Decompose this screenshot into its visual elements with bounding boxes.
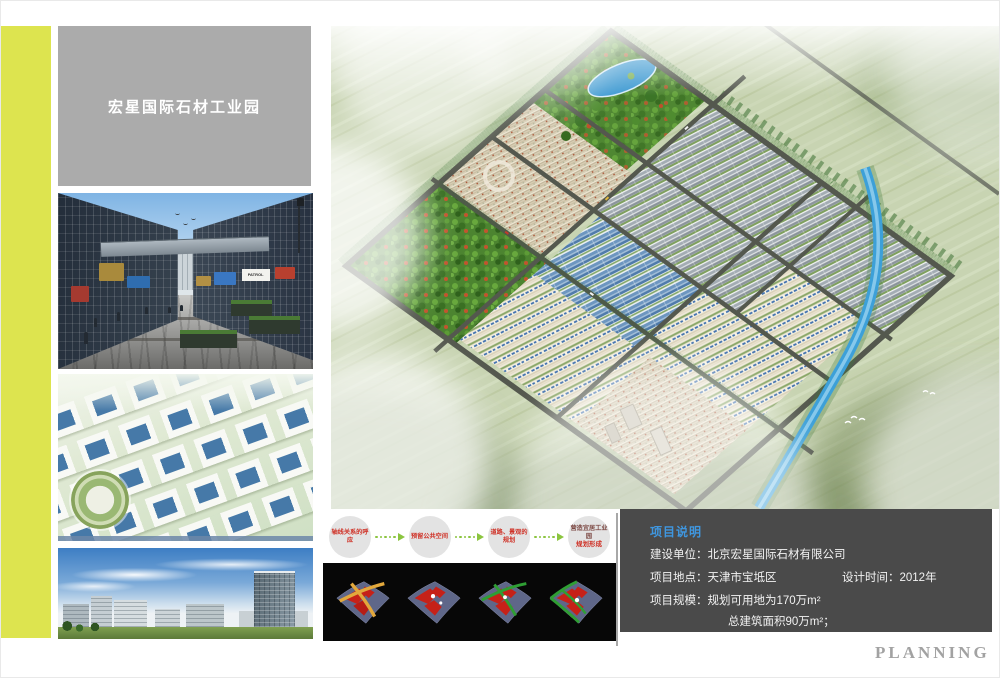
page-title: 宏星国际石材工业园	[108, 96, 261, 117]
shop-sign-patrol: PATROL	[242, 269, 270, 281]
vertical-divider	[616, 513, 618, 646]
person-figure	[84, 332, 88, 344]
flow-step-2: 预留公共空间	[409, 516, 451, 558]
planter	[231, 300, 272, 316]
flow-step-3: 道路、景观的规划	[488, 516, 530, 558]
info-value: 2012年	[900, 572, 937, 584]
arrow-right-icon	[534, 533, 564, 541]
arrow-right-icon	[375, 533, 405, 541]
flow-step-label: 道路、景观的规划	[489, 529, 529, 544]
info-value: 总建筑面积90万m²；	[728, 616, 835, 628]
flow-step-label: 预留公共空间	[411, 533, 448, 541]
flow-step-4: 营造宜居工业园 规划形成	[568, 516, 610, 558]
flow-step-1: 轴线关系的呼应	[329, 516, 371, 558]
aerial-view-photo	[58, 374, 313, 541]
info-row-scale: 项目规模：规划可用地为170万m²	[650, 592, 821, 608]
concept-diagram-final	[545, 574, 607, 630]
shop-sign	[127, 276, 150, 288]
person-figure	[168, 307, 171, 313]
photo-edge-band	[58, 536, 313, 541]
bird	[191, 216, 196, 220]
concept-diagram-roads	[474, 574, 536, 630]
masterplan-rendering	[331, 26, 999, 509]
shop-sign	[99, 263, 125, 281]
person-figure	[180, 305, 183, 311]
info-value: 北京宏星国际石材有限公司	[708, 549, 846, 561]
horizon-fade	[58, 374, 313, 411]
info-value: 规划可用地为170万m²	[708, 595, 821, 607]
street-lamp-head	[297, 198, 304, 206]
arrow-right-icon	[455, 533, 485, 541]
info-row-builder: 建设单位：北京宏星国际石材有限公司	[650, 546, 846, 562]
concept-diagram-space	[403, 574, 465, 630]
flow-step-sublabel: 规划形成	[576, 541, 602, 549]
building	[155, 609, 181, 627]
panorama-photo	[58, 548, 313, 639]
shop-sign	[275, 267, 295, 279]
building	[186, 604, 224, 627]
flow-step-label: 轴线关系的呼应	[330, 529, 370, 544]
shop-sign	[214, 272, 237, 284]
masterplan-svg	[331, 26, 999, 509]
info-row-area: 总建筑面积90万m²；	[728, 613, 835, 629]
presentation-board: 宏星国际石材工业园 PATROL	[0, 0, 1000, 678]
office-tower	[254, 571, 295, 628]
person-figure	[94, 318, 97, 327]
accent-stripe	[1, 26, 51, 638]
street-view-photo: PATROL	[58, 193, 313, 369]
person-figure	[145, 307, 148, 314]
shop-sign	[196, 276, 211, 287]
planter	[180, 330, 236, 348]
project-info-title: 项目说明	[650, 523, 702, 540]
planter	[249, 316, 300, 334]
shop-sign	[71, 286, 89, 302]
planning-watermark: PLANNING	[875, 643, 990, 663]
title-panel: 宏星国际石材工业园	[58, 26, 311, 186]
top-haze	[331, 26, 999, 96]
bird	[175, 211, 180, 215]
concept-diagrams-panel	[323, 563, 616, 641]
flow-step-label: 营造宜居工业园	[569, 525, 609, 540]
info-row-location: 项目地点：天津市宝坻区	[650, 569, 777, 585]
info-label: 设计时间：	[842, 572, 900, 584]
info-label: 项目地点：	[650, 572, 708, 584]
info-row-design-time: 设计时间：2012年	[842, 569, 937, 585]
person-figure	[117, 312, 120, 321]
trees	[58, 612, 135, 632]
info-label: 建设单位：	[650, 549, 708, 561]
info-label: 项目规模：	[650, 595, 708, 607]
circular-plaza	[71, 471, 129, 529]
concept-diagram-axes	[332, 574, 394, 630]
street-lamp	[298, 200, 300, 253]
info-value: 天津市宝坻区	[708, 572, 777, 584]
design-process-flow: 轴线关系的呼应 预留公共空间 道路、景观的规划 营造宜居工业园 规划形成	[323, 513, 616, 561]
project-info-panel: 项目说明 建设单位：北京宏星国际石材有限公司 项目地点：天津市宝坻区 设计时间：…	[620, 509, 992, 632]
